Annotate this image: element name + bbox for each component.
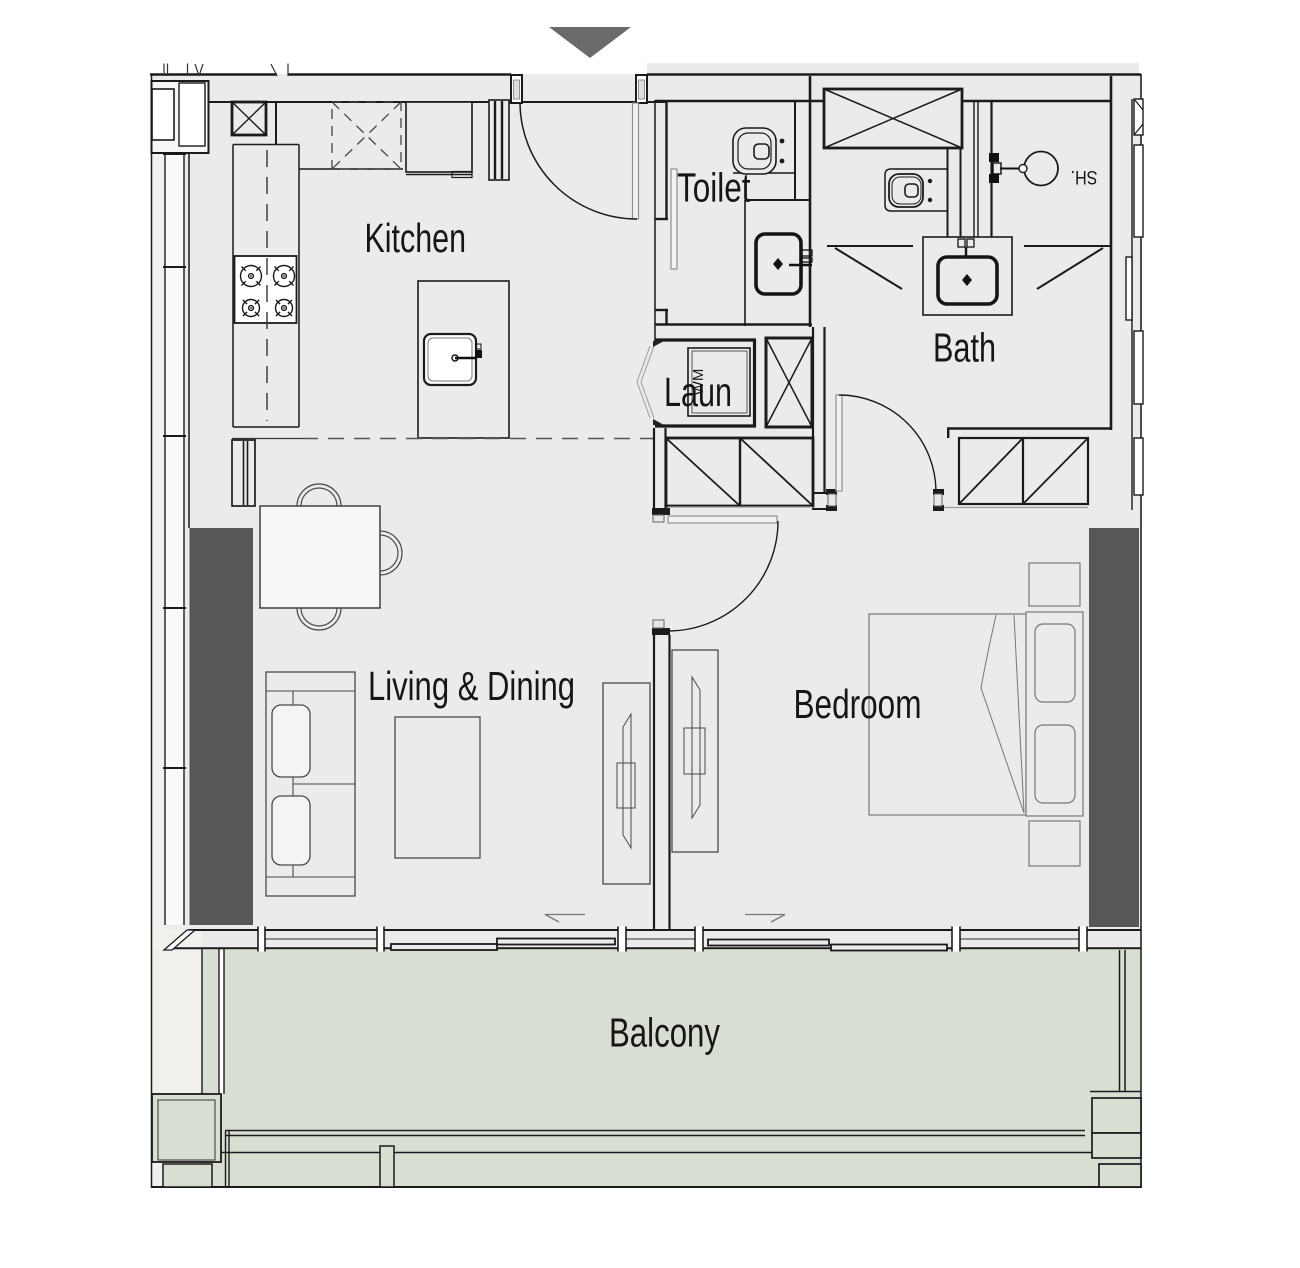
svg-text:Bedroom: Bedroom	[794, 681, 922, 727]
svg-text:Toilet: Toilet	[677, 165, 751, 211]
svg-text:SH.: SH.	[1071, 166, 1098, 187]
svg-text:Bath: Bath	[933, 325, 996, 371]
svg-text:Laun: Laun	[664, 369, 732, 415]
svg-text:Balcony: Balcony	[609, 1010, 720, 1056]
svg-text:Kitchen: Kitchen	[365, 215, 467, 261]
svg-text:Living & Dining: Living & Dining	[368, 663, 575, 709]
